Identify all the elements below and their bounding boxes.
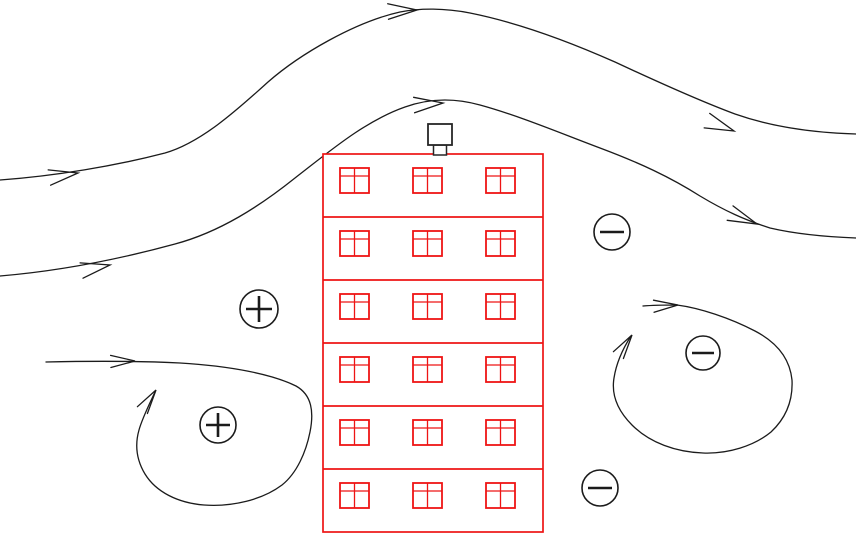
flow-diagram-canvas <box>0 0 856 543</box>
negative-pressure-marker <box>594 214 630 250</box>
chimney-box <box>428 124 452 145</box>
positive-pressure-marker <box>240 290 278 328</box>
wind-flow-diagram <box>0 0 856 543</box>
negative-pressure-marker <box>582 470 618 506</box>
building <box>323 154 543 532</box>
negative-pressure-marker <box>686 336 720 370</box>
chimney-neck <box>434 145 447 155</box>
positive-pressure-marker <box>200 407 236 443</box>
